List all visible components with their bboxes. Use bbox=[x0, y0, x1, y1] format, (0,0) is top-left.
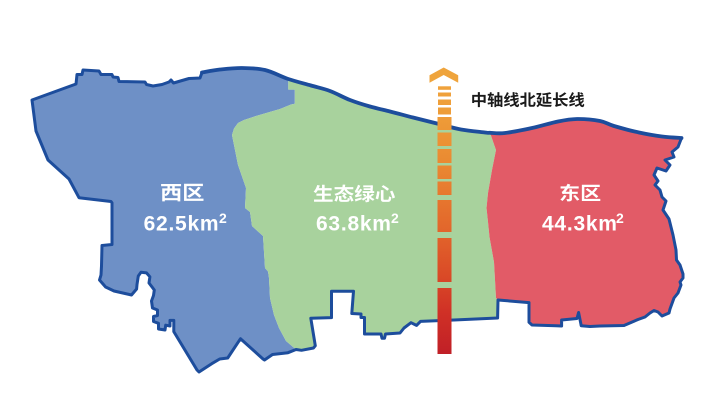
svg-text:2: 2 bbox=[391, 210, 399, 226]
svg-text:2: 2 bbox=[219, 210, 227, 226]
svg-text:63.8km: 63.8km bbox=[316, 213, 392, 236]
svg-text:62.5km: 62.5km bbox=[144, 213, 220, 236]
svg-text:2: 2 bbox=[616, 210, 624, 226]
svg-text:44.3km: 44.3km bbox=[542, 213, 618, 236]
